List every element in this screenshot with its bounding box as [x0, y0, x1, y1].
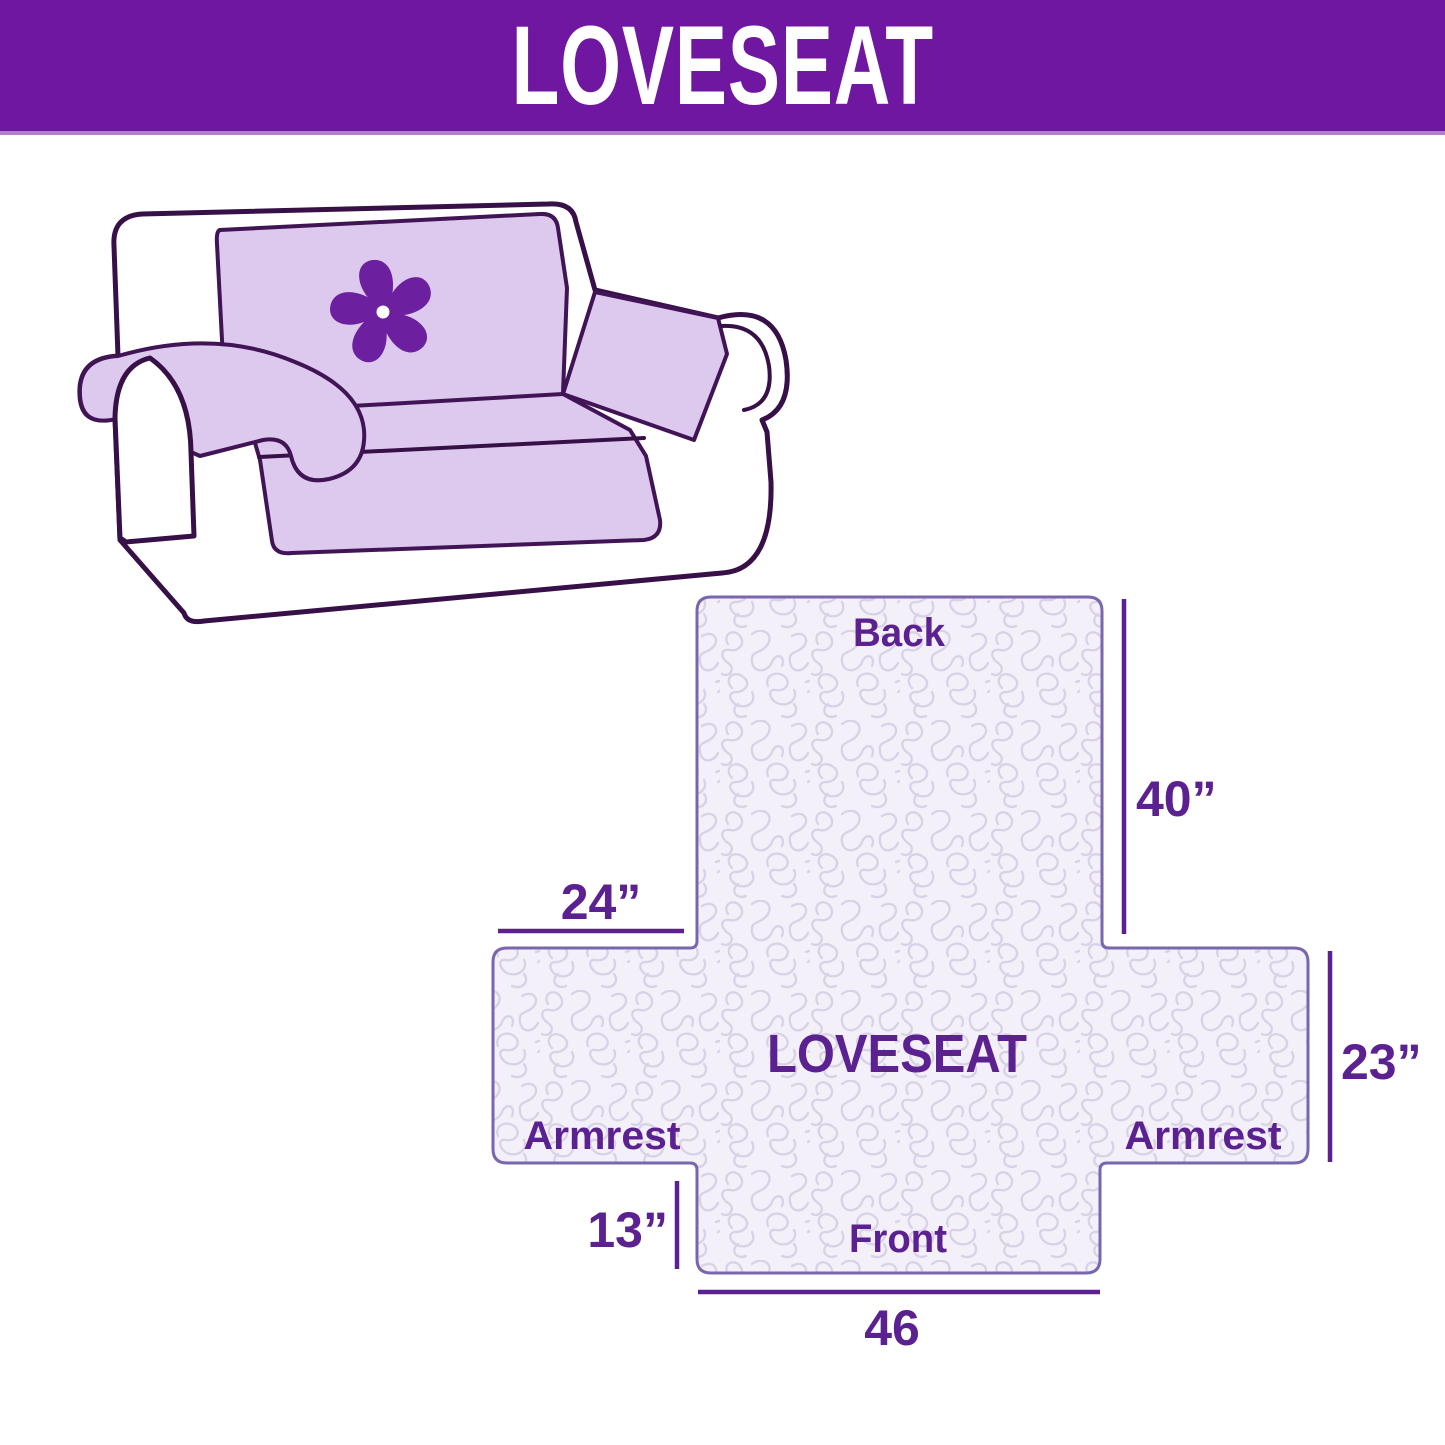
page-title: LOVESEAT — [511, 10, 933, 122]
dimension-armrest-width: 24” — [561, 874, 642, 930]
dimension-side-height: 23” — [1341, 1034, 1422, 1090]
cover-shape — [493, 597, 1308, 1273]
armrest-right-label: Armrest — [1125, 1114, 1282, 1158]
sofa-illustration — [70, 190, 790, 635]
infographic-page: LOVESEAT — [0, 0, 1445, 1445]
header-banner: LOVESEAT — [0, 0, 1445, 135]
back-panel-label: Back — [853, 611, 946, 655]
center-label: LOVESEAT — [767, 1024, 1027, 1084]
front-panel-label: Front — [849, 1217, 947, 1261]
cover-dimension-diagram: Back LOVESEAT Armrest Armrest Front 40” … — [480, 580, 1430, 1380]
armrest-left-label: Armrest — [524, 1114, 681, 1158]
dimension-back-height: 40” — [1136, 771, 1217, 827]
dimension-front-drop: 13” — [587, 1202, 668, 1258]
dimension-front-width: 46 — [864, 1300, 920, 1356]
